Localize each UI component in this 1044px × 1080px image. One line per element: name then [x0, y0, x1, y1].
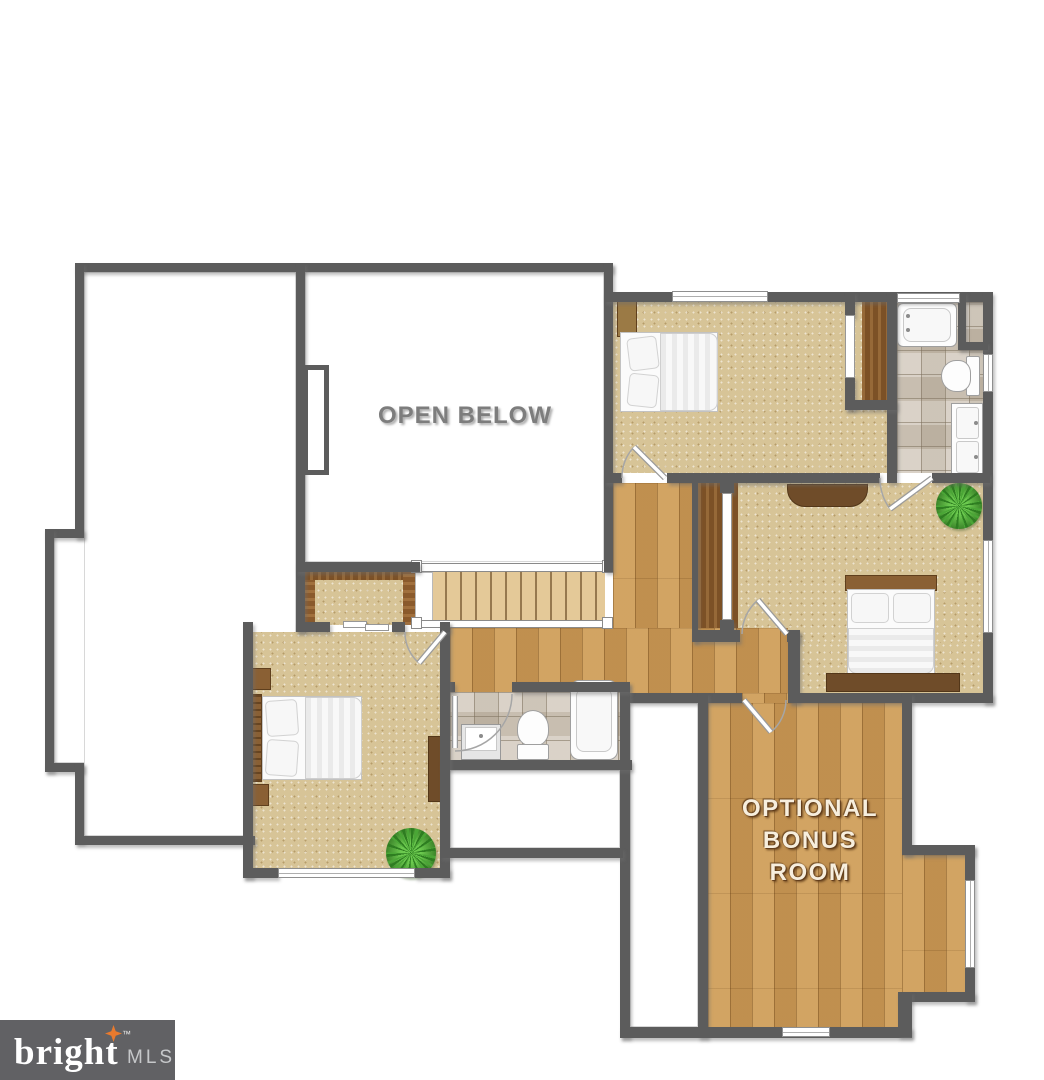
- bedroom3-closet-floor: [315, 580, 403, 625]
- wall: [932, 473, 990, 483]
- window: [983, 354, 993, 392]
- bedroom2-closet: [698, 483, 738, 630]
- wall: [620, 693, 742, 703]
- bedroom3-pillow: [265, 699, 299, 737]
- master-bed-duvet: [660, 333, 718, 411]
- wall: [692, 630, 740, 642]
- bathtub-faucet: [906, 314, 910, 318]
- master-closet-shelves: [862, 297, 887, 407]
- railing-post: [411, 617, 422, 629]
- chimney-niche: [303, 365, 329, 475]
- bathtub-basin: [903, 308, 951, 342]
- bonus-label-line2: BONUS: [710, 825, 910, 857]
- floor-plan: OPEN BELOW OPTIONAL BONUS ROOM bright ™ …: [0, 0, 1044, 1080]
- logo-suffix-text: MLS: [127, 1047, 175, 1069]
- wall: [620, 682, 630, 1038]
- bedroom2-bed-duvet: [848, 628, 934, 674]
- bonus-label-line1: OPTIONAL: [710, 793, 910, 825]
- vanity-faucet: [974, 421, 978, 425]
- bedroom3-closet-door: [365, 624, 389, 631]
- window: [897, 293, 960, 303]
- wall: [667, 473, 880, 483]
- wall: [296, 622, 330, 632]
- window: [983, 540, 993, 633]
- wall: [692, 483, 698, 642]
- wall: [845, 400, 897, 410]
- bedroom2-desk: [787, 484, 868, 507]
- wall: [392, 622, 405, 632]
- wall: [604, 263, 613, 572]
- wall: [243, 868, 278, 878]
- window: [965, 880, 975, 968]
- master-bed-pillow: [626, 335, 660, 371]
- logo-brand-text: bright: [14, 1031, 119, 1074]
- hall-bath-sink: [465, 727, 497, 751]
- wall: [75, 836, 255, 845]
- wall: [604, 473, 622, 483]
- vanity-faucet: [974, 455, 978, 459]
- wall: [75, 263, 84, 538]
- bedroom2-foot-bench: [826, 673, 960, 692]
- bedroom3-bed-duvet: [305, 697, 362, 779]
- wall: [440, 848, 623, 858]
- hall-bathtub-basin: [576, 688, 612, 752]
- room-storage-under-bath: [450, 770, 620, 848]
- open-below-label: OPEN BELOW: [370, 402, 560, 430]
- wall: [415, 868, 450, 878]
- bathtub-faucet: [906, 328, 910, 332]
- master-bed-pillow: [626, 373, 659, 409]
- door-exterior: [782, 1027, 830, 1037]
- bedroom3-nightstand: [251, 784, 269, 806]
- wall: [296, 562, 420, 572]
- wall: [45, 529, 54, 772]
- wall: [75, 763, 84, 843]
- wall: [445, 622, 450, 632]
- hall-toilet-bowl: [517, 710, 549, 746]
- wall: [898, 992, 912, 1037]
- room-unfinished-strip: [630, 703, 698, 1027]
- wall: [75, 263, 613, 272]
- wall: [620, 1027, 912, 1038]
- bedroom3-nightstand: [251, 668, 271, 690]
- stair-railing-top: [415, 563, 613, 572]
- bonus-label-line3: ROOM: [710, 857, 910, 889]
- bonus-room-label: OPTIONAL BONUS ROOM: [710, 793, 910, 889]
- plant: [936, 483, 982, 529]
- hall-toilet-tank: [517, 744, 549, 760]
- room-bonus-bump: [902, 855, 965, 992]
- window: [278, 868, 415, 878]
- wall: [243, 622, 253, 878]
- bedroom3-pillow: [265, 739, 299, 777]
- wall: [512, 682, 630, 692]
- hall-bath-faucet: [479, 734, 483, 738]
- hallway-door-gap: [742, 693, 790, 703]
- bedroom2-pillow: [893, 593, 931, 623]
- wall: [440, 622, 450, 878]
- railing-post: [602, 617, 613, 629]
- wall: [845, 292, 855, 317]
- hallway-upper: [613, 483, 692, 632]
- window: [672, 291, 768, 302]
- logo-trademark: ™: [122, 1029, 131, 1039]
- master-closet-sliding-door: [845, 315, 855, 378]
- toilet-bowl: [941, 360, 971, 392]
- wall: [698, 693, 708, 1038]
- bedroom2-pillow: [851, 593, 889, 623]
- wall: [790, 693, 993, 703]
- wall: [720, 483, 734, 493]
- room-unfinished-left-notch: [54, 538, 84, 763]
- wall: [440, 760, 632, 770]
- bedroom3-closet-door: [343, 621, 367, 628]
- wall: [887, 292, 897, 483]
- bright-mls-logo: bright ™ MLS: [0, 1020, 175, 1080]
- bedroom2-closet-sliding-door: [722, 493, 732, 620]
- wall: [958, 342, 988, 350]
